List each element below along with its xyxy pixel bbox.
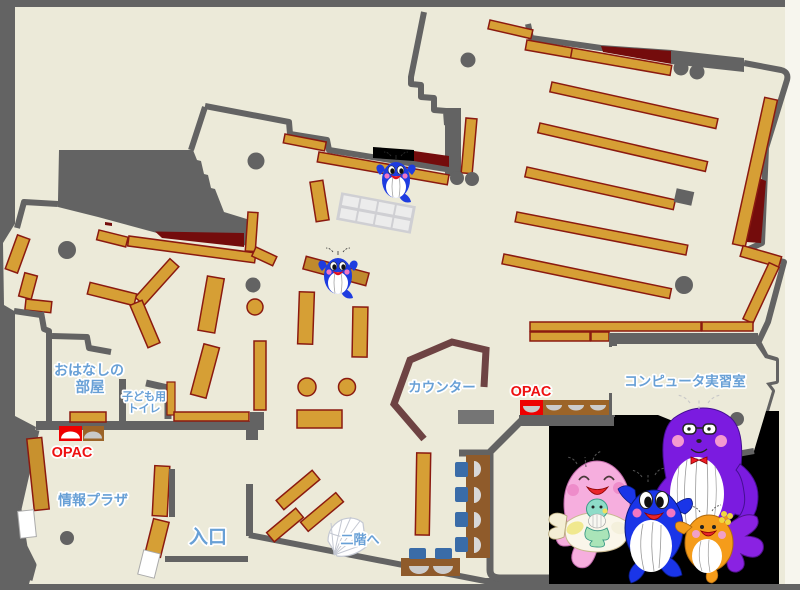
svg-text:おはなしの: おはなしの — [54, 362, 124, 378]
svg-text:トイレ: トイレ — [128, 402, 161, 415]
svg-text:情報プラザ: 情報プラザ — [58, 492, 128, 508]
svg-text:カウンター: カウンター — [408, 380, 476, 395]
svg-text:二階へ: 二階へ — [340, 532, 379, 547]
svg-text:OPAC: OPAC — [511, 384, 552, 400]
svg-text:入口: 入口 — [189, 526, 227, 548]
svg-text:部屋: 部屋 — [76, 378, 105, 396]
svg-text:OPAC: OPAC — [52, 445, 93, 461]
svg-text:子ども用: 子ども用 — [122, 390, 166, 403]
svg-text:コンピュータ実習室: コンピュータ実習室 — [624, 373, 746, 389]
